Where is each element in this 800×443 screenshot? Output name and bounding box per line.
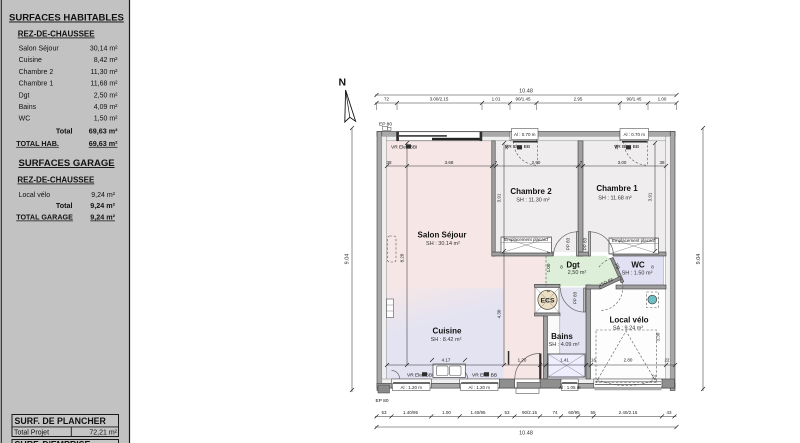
svg-text:1,50 m²: 1,50 m² [94,116,118,123]
svg-text:1.00: 1.00 [658,97,667,102]
svg-text:SH : 11.68 m²: SH : 11.68 m² [598,196,632,202]
svg-text:4,09 m²: 4,09 m² [94,104,118,111]
svg-text:60/95: 60/95 [568,410,580,415]
svg-text:1.00: 1.00 [546,263,551,272]
svg-text:16: 16 [591,358,597,363]
svg-text:3.91: 3.91 [648,192,653,201]
svg-text:SURFACES HABITABLES: SURFACES HABITABLES [9,13,124,24]
svg-text:22: 22 [664,358,670,363]
svg-text:38: 38 [386,160,392,165]
svg-text:VR Elec BBI: VR Elec BBI [391,145,417,151]
svg-text:3.91: 3.91 [497,193,502,202]
svg-text:10.48: 10.48 [519,89,533,95]
svg-text:Chambre 2: Chambre 2 [19,69,54,76]
svg-text:22: 22 [652,374,657,380]
svg-text:9.04: 9.04 [345,254,351,265]
svg-text:11,68 m²: 11,68 m² [90,81,118,88]
svg-text:4.17: 4.17 [442,358,451,363]
svg-text:REZ-DE-CHAUSSEE: REZ-DE-CHAUSSEE [17,176,95,185]
svg-text:ECS: ECS [541,297,555,304]
svg-text:69,63 m²: 69,63 m² [89,127,118,136]
svg-text:9,24 m²: 9,24 m² [90,201,115,210]
svg-text:55: 55 [590,410,596,415]
svg-text:2,50 m²: 2,50 m² [94,92,118,99]
svg-text:8,42 m²: 8,42 m² [94,57,118,64]
svg-text:Dgt: Dgt [566,261,580,270]
svg-text:3.00: 3.00 [618,160,627,165]
svg-text:1.20: 1.20 [518,358,527,363]
svg-text:72,21 m²: 72,21 m² [89,430,117,437]
svg-text:2.40/2.15: 2.40/2.15 [619,410,638,415]
svg-text:72: 72 [384,97,390,102]
svg-text:8.28: 8.28 [400,253,405,262]
svg-text:Bains: Bains [551,332,573,341]
svg-text:PP 83: PP 83 [583,237,588,250]
svg-text:SURF. DE PLANCHER: SURF. DE PLANCHER [15,416,107,426]
svg-text:9,24 m²: 9,24 m² [91,192,115,199]
svg-text:38: 38 [659,160,665,165]
svg-text:Al : 1.05 m: Al : 1.05 m [559,385,581,390]
svg-text:Cuisine: Cuisine [19,57,42,64]
svg-text:SA : 9.24 m²: SA : 9.24 m² [613,326,643,332]
svg-text:43: 43 [666,410,672,415]
svg-text:3.68: 3.68 [445,160,454,165]
svg-text:Al : 0.70 m: Al : 0.70 m [623,132,645,137]
svg-text:SH : 4.09 m²: SH : 4.09 m² [549,342,580,348]
svg-text:1.41: 1.41 [560,358,569,363]
svg-text:90/1.45: 90/1.45 [515,97,531,102]
svg-text:90/2.15: 90/2.15 [522,410,538,415]
svg-text:1.00: 1.00 [442,410,451,415]
svg-text:2,50 m²: 2,50 m² [568,270,587,276]
svg-text:2.95: 2.95 [574,97,583,102]
svg-text:Al : 0.70 m: Al : 0.70 m [514,132,536,137]
svg-text:WC: WC [631,261,645,270]
svg-text:Bains: Bains [19,104,37,111]
svg-text:Emplacement placard: Emplacement placard [612,238,656,243]
svg-text:Dgt: Dgt [19,92,30,99]
svg-text:11,30 m²: 11,30 m² [90,69,118,76]
svg-text:53: 53 [504,410,510,415]
svg-text:4.30: 4.30 [497,309,502,318]
svg-text:Total Projet: Total Projet [14,430,49,437]
svg-text:Chambre 1: Chambre 1 [596,184,638,193]
svg-text:2.80: 2.80 [624,358,633,363]
svg-text:REZ-DE-CHAUSSEE: REZ-DE-CHAUSSEE [18,30,96,39]
svg-text:VR Elec BBI: VR Elec BBI [407,373,433,379]
svg-text:Cuisine: Cuisine [433,327,462,336]
svg-text:Total: Total [56,201,73,210]
svg-text:EP 80: EP 80 [376,398,389,404]
svg-text:74: 74 [552,410,558,415]
svg-text:SH : 1.50 m²: SH : 1.50 m² [622,271,653,277]
svg-text:TOTAL GARAGE: TOTAL GARAGE [16,213,73,222]
svg-text:PP 83: PP 83 [566,237,571,250]
svg-text:30,14 m²: 30,14 m² [90,46,118,53]
svg-text:Al : 1.20 m: Al : 1.20 m [401,385,423,390]
svg-text:Total: Total [56,127,73,136]
svg-text:N: N [339,77,347,89]
svg-text:TOTAL HAB.: TOTAL HAB. [16,139,59,148]
svg-text:1.40/95: 1.40/95 [470,410,486,415]
svg-text:53: 53 [381,410,387,415]
svg-text:WC: WC [19,116,31,123]
svg-text:Emplacement placard: Emplacement placard [504,237,548,242]
svg-text:SH : 11.30 m²: SH : 11.30 m² [516,198,550,204]
svg-text:10.48: 10.48 [519,431,533,437]
svg-text:Salon Séjour: Salon Séjour [19,46,60,53]
svg-text:Local vélo: Local vélo [609,316,648,325]
svg-text:SURF. D'EMPRISE: SURF. D'EMPRISE [15,440,91,443]
svg-text:SH : 30.14 m²: SH : 30.14 m² [426,241,460,247]
svg-text:1.40/95: 1.40/95 [403,410,419,415]
svg-text:SURFACES GARAGE: SURFACES GARAGE [19,158,115,169]
svg-text:Local vélo: Local vélo [19,192,51,199]
svg-text:3.00/2.15: 3.00/2.15 [430,97,449,102]
svg-text:Al : 1.20 m: Al : 1.20 m [469,385,491,390]
svg-text:Chambre 1: Chambre 1 [19,81,54,88]
svg-text:69,63 m²: 69,63 m² [89,139,118,148]
svg-text:2.90: 2.90 [532,160,541,165]
svg-text:1.01: 1.01 [492,97,501,102]
svg-text:9.04: 9.04 [696,254,702,265]
svg-text:PP 83: PP 83 [573,291,578,304]
svg-text:SH : 8.42 m²: SH : 8.42 m² [431,337,462,343]
svg-text:Chambre 2: Chambre 2 [510,187,552,196]
svg-text:90/1.45: 90/1.45 [626,97,642,102]
svg-text:3.30: 3.30 [656,332,661,341]
svg-text:9,24 m²: 9,24 m² [90,213,115,222]
svg-text:Salon Séjour: Salon Séjour [418,231,467,240]
